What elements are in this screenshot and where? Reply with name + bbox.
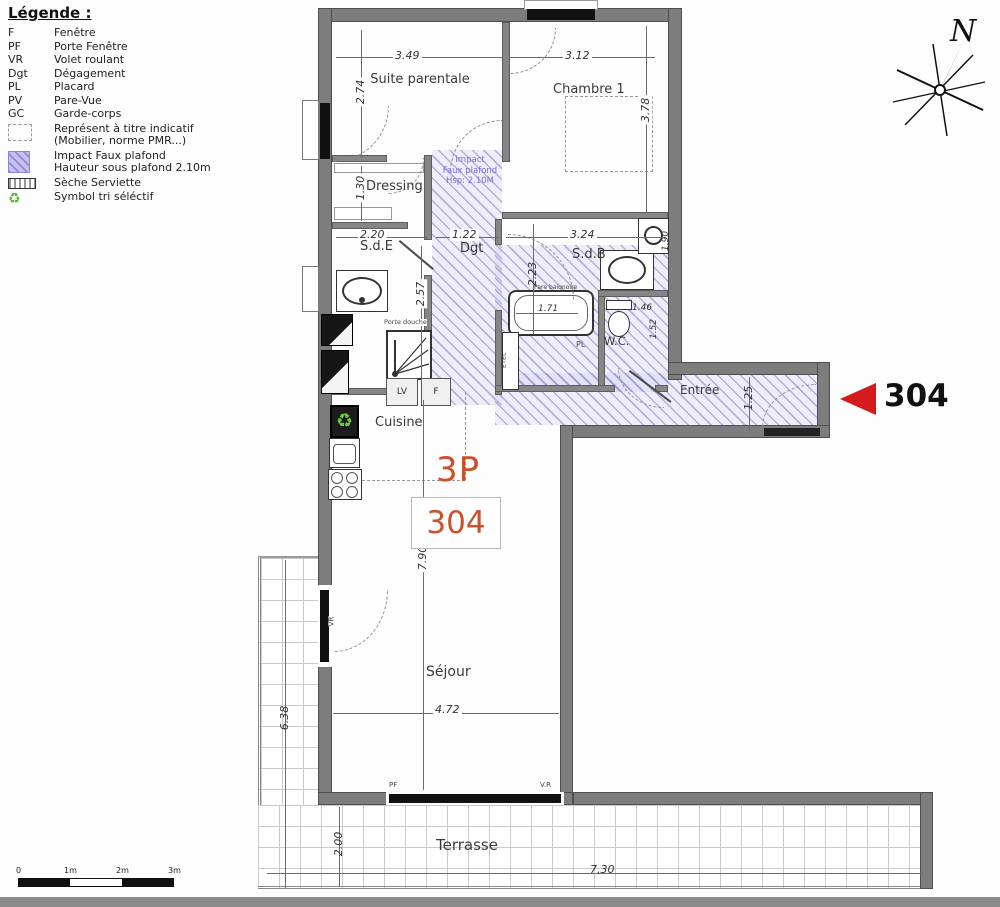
- impact-line2: Faux plafond: [438, 166, 502, 177]
- burner-1: [331, 472, 343, 484]
- partition-dgt-sdb-stub: [495, 219, 502, 245]
- pl-label: PL: [576, 341, 585, 349]
- entrance-unit-number: 304: [884, 378, 949, 414]
- partition-dressing-right: [424, 155, 432, 240]
- legend-label: Fenêtre: [54, 26, 96, 40]
- scale-bar: [18, 878, 174, 887]
- window-sill-sde: [302, 266, 319, 312]
- room-label-wc: W.C.: [604, 334, 629, 348]
- terrace-bottom-strip: [258, 805, 923, 889]
- dim-terr-w: 7.30: [588, 864, 617, 876]
- partition-suite-chambre: [502, 22, 510, 162]
- legend-label: Volet roulant: [54, 53, 124, 67]
- burner-4: [346, 486, 358, 498]
- dim-sdb-w: 3.24: [568, 229, 597, 241]
- legend-row-pl: PLPlacard: [8, 80, 243, 94]
- wall-right-upper: [668, 8, 682, 380]
- legend-row-gc: GCGarde-corps: [8, 107, 243, 121]
- dim-dgt-w: 1.22: [450, 229, 479, 241]
- window-suite-left: [320, 103, 330, 159]
- hatch-zone-dgt: [432, 150, 502, 405]
- legend-abbr: GC: [8, 107, 54, 121]
- page-bottom-bar: [0, 897, 1000, 907]
- unit-number: 304: [426, 505, 485, 541]
- legend-symbol-tri-selectif: ♻ Symbol tri séléctif: [8, 191, 243, 206]
- legend-abbr: PV: [8, 94, 54, 108]
- legend-sym-line: (Mobilier, norme PMR...): [54, 135, 194, 148]
- impact-line1: Impact: [438, 155, 502, 166]
- legend: Légende : FFenêtre PFPorte Fenêtre VRVol…: [8, 4, 243, 206]
- legend-abbr: VR: [8, 53, 54, 67]
- dim-chambre-w: 3.12: [563, 50, 592, 62]
- duct-b: [321, 350, 349, 394]
- legend-sym-line: Sèche Serviette: [54, 177, 141, 190]
- scale-tick-1m: 1m: [64, 866, 77, 875]
- dim-sdb-side: 1.90: [662, 229, 672, 253]
- legend-row-pf: PFPorte Fenêtre: [8, 40, 243, 54]
- dim-terr-left: 6.38: [279, 704, 291, 733]
- burner-2: [346, 472, 358, 484]
- scale-tick-0: 0: [16, 866, 21, 875]
- sdb-sink: [608, 256, 646, 284]
- towel-radiator-icon: [8, 177, 54, 190]
- room-label-entree: Entrée: [680, 383, 719, 397]
- vr-label-sejour-door: VR: [328, 617, 335, 627]
- shower: [386, 330, 432, 380]
- room-label-sdb: S.d.B: [572, 247, 606, 262]
- window-chambre-top: [527, 9, 595, 20]
- compass-icon: [885, 30, 995, 140]
- tri-selectif-box: ♻: [330, 405, 359, 438]
- partition-wc-top: [598, 290, 668, 297]
- dim-wc-w: 1.46: [630, 304, 654, 314]
- legend-abbr: PL: [8, 80, 54, 94]
- legend-abbr: PF: [8, 40, 54, 54]
- scale-tick-3m: 3m: [168, 866, 181, 875]
- burner-3: [331, 486, 343, 498]
- furniture-dashed-icon: [8, 123, 54, 148]
- legend-row-pv: PVPare-Vue: [8, 94, 243, 108]
- dim-suite-w: 3.49: [393, 50, 422, 62]
- dim-sejour-w: 4.72: [433, 704, 462, 716]
- etel-label: ETEL: [501, 352, 508, 368]
- scale-seg-black1: [19, 879, 70, 886]
- legend-symbol-seche-serviette: Sèche Serviette: [8, 177, 243, 190]
- room-label-cuisine: Cuisine: [375, 415, 423, 430]
- recycle-icon: ♻: [336, 412, 353, 431]
- window-sill-suite: [302, 100, 319, 160]
- wall-terrace-band: [573, 792, 933, 805]
- legend-sym-line: Symbol tri séléctif: [54, 191, 153, 204]
- kitchen-sink-basin: [333, 444, 356, 464]
- fridge-box: F: [421, 378, 451, 406]
- shower-door-fan: [388, 332, 431, 379]
- dim-entree-h: 1.25: [743, 384, 755, 413]
- legend-label: Pare-Vue: [54, 94, 102, 108]
- entrance-arrow-icon: [840, 383, 876, 415]
- porte-douche-label: Porte douche: [384, 319, 427, 326]
- room-label-sejour: Séjour: [426, 664, 471, 680]
- wall-top: [318, 8, 670, 22]
- legend-title: Légende :: [8, 4, 243, 22]
- fridge-label: F: [433, 388, 438, 397]
- lv-box: LV: [386, 378, 418, 406]
- legend-abbr: F: [8, 26, 54, 40]
- impact-line3: Hsp: 2.10M: [438, 176, 502, 187]
- pare-baignoire-label: Pare baignoire: [534, 285, 577, 291]
- door-arc-sejour-terrace: [334, 590, 388, 652]
- room-label-terrasse: Terrasse: [436, 836, 498, 854]
- dimline-sejour-h: [423, 400, 424, 790]
- floorplan-page: ETEL ♻ LV F 3.49 3.12 2.74: [0, 0, 1000, 907]
- unit-type: 3P: [436, 450, 480, 490]
- pf-label-sejour: PF: [389, 782, 397, 789]
- room-label-chambre: Chambre 1: [553, 82, 625, 97]
- legend-sym-line: Hauteur sous plafond 2.10m: [54, 162, 211, 175]
- dim-chambre-h: 3.78: [640, 96, 652, 125]
- room-label-dressing: Dressing: [366, 179, 423, 194]
- legend-row-f: FFenêtre: [8, 26, 243, 40]
- room-label-dgt: Dgt: [460, 241, 483, 256]
- impact-swatch-icon: [8, 150, 54, 175]
- dim-terr-bottom: 2.00: [333, 830, 345, 859]
- legend-abbr: Dgt: [8, 67, 54, 81]
- window-sejour-bottom: [389, 794, 561, 803]
- unit-number-box: 304: [411, 497, 501, 549]
- recycle-legend-icon: ♻: [8, 191, 54, 206]
- lv-label: LV: [397, 388, 407, 397]
- scale-seg-black2: [122, 879, 173, 886]
- dressing-wardrobe-bottom: [334, 207, 392, 220]
- door-leaf-sde: [399, 240, 434, 270]
- door-arc-chambre: [510, 28, 556, 74]
- legend-row-vr: VRVolet roulant: [8, 53, 243, 67]
- sde-sink-faucet: [359, 297, 365, 303]
- legend-label: Garde-corps: [54, 107, 121, 121]
- vr-label-sejour-window: V.R: [540, 782, 551, 789]
- wall-sejour-right: [560, 425, 573, 805]
- dim-suite-h: 2.74: [355, 78, 367, 107]
- impact-annotation: Impact Faux plafond Hsp: 2.10M: [438, 155, 502, 187]
- scale-tick-2m: 2m: [116, 866, 129, 875]
- legend-label: Porte Fenêtre: [54, 40, 128, 54]
- duct-a: [321, 314, 353, 346]
- wall-entree-top: [668, 362, 830, 375]
- room-label-sde: S.d.E: [360, 239, 393, 254]
- legend-row-dgt: DgtDégagement: [8, 67, 243, 81]
- room-label-suite: Suite parentale: [370, 72, 470, 87]
- dim-sde-h: 2.57: [415, 280, 427, 309]
- legend-symbol-impact: Impact Faux plafond Hauteur sous plafond…: [8, 150, 243, 175]
- front-door-threshold: [764, 428, 820, 436]
- legend-symbol-furniture: Représent à titre indicatif (Mobilier, n…: [8, 123, 243, 148]
- dimline-sde-h: [421, 246, 422, 384]
- toilet-tank: [606, 300, 632, 310]
- wall-terrace-right: [920, 792, 933, 889]
- compass-north-label: N: [950, 14, 976, 49]
- dim-bath-w: 1.71: [536, 305, 560, 315]
- scale-seg-white: [70, 879, 121, 886]
- legend-label: Placard: [54, 80, 95, 94]
- legend-label: Dégagement: [54, 67, 125, 81]
- dim-wc-h: 1.52: [650, 317, 660, 341]
